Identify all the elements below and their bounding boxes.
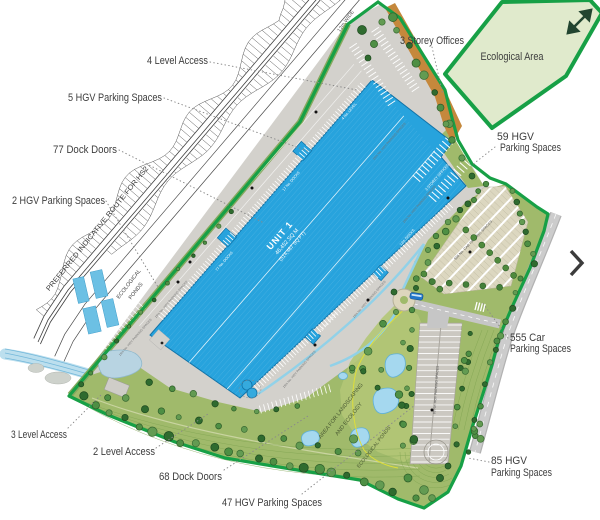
svg-text:Ecological Area: Ecological Area [481,51,545,63]
svg-text:3 Level Access: 3 Level Access [11,429,67,441]
svg-text:85 HGV: 85 HGV [491,455,528,467]
svg-text:2 Level Access: 2 Level Access [93,446,155,458]
svg-text:5 HGV Parking Spaces: 5 HGV Parking Spaces [68,92,162,104]
svg-text:4 Level Access: 4 Level Access [147,55,208,67]
svg-text:47 HGV Parking Spaces: 47 HGV Parking Spaces [222,497,322,509]
svg-text:Parking Spaces: Parking Spaces [500,142,561,154]
svg-text:68 Dock Doors: 68 Dock Doors [159,471,222,483]
svg-text:3 Storey Offices: 3 Storey Offices [400,35,464,47]
svg-text:Parking Spaces: Parking Spaces [491,467,552,479]
svg-text:77 Dock Doors: 77 Dock Doors [53,144,117,156]
svg-text:2 HGV Parking Spaces: 2 HGV Parking Spaces [12,195,105,207]
svg-text:Parking Spaces: Parking Spaces [510,343,571,355]
